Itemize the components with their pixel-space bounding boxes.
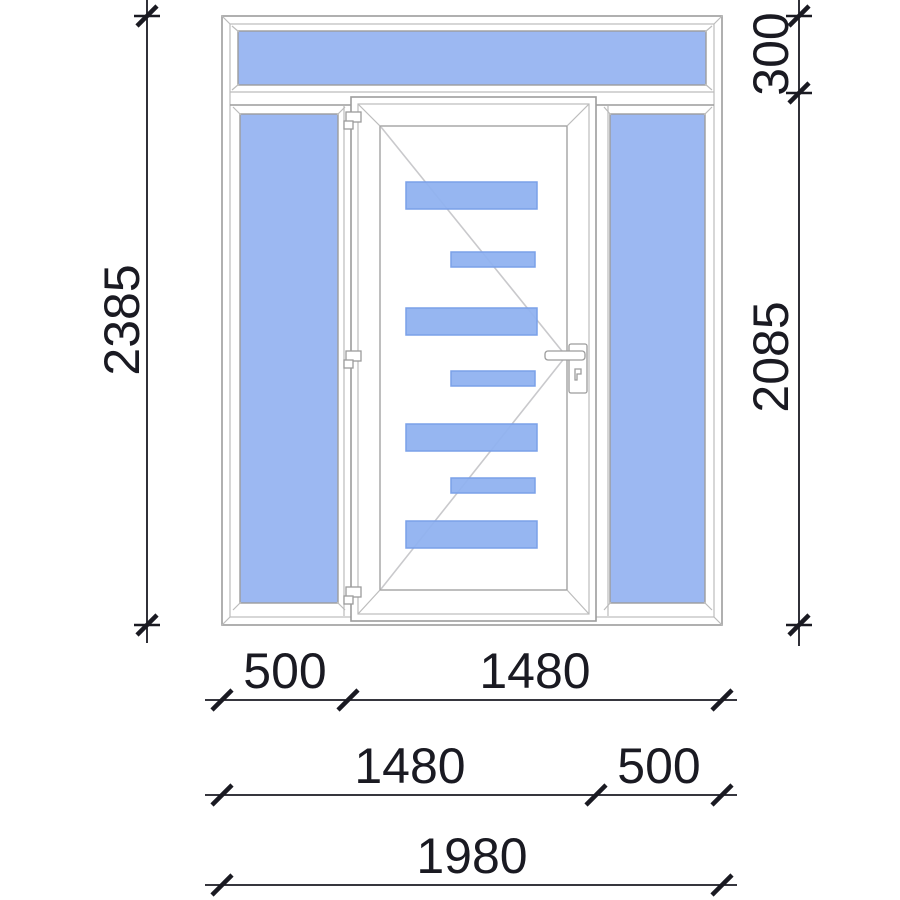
door-glass-strip — [406, 424, 537, 451]
right-sidelight-glass — [610, 114, 705, 603]
dimension-label-total-width: 1980 — [416, 828, 527, 884]
dimension-label-row2-right: 500 — [617, 738, 700, 794]
door-glass-strip — [451, 252, 535, 267]
dimension-label-transom-height: 300 — [743, 12, 799, 95]
dimension-total-width: 1980 — [205, 828, 737, 895]
door-glass-strip — [451, 371, 535, 386]
hinge-knuckle — [344, 596, 353, 604]
right-sidelight — [604, 106, 712, 616]
door-elevation-drawing: 2385 300 2085 500 1480 1480 500 1980 — [0, 0, 900, 900]
dimension-label-row1-right: 1480 — [479, 643, 590, 699]
dimension-width-row1: 500 1480 — [205, 643, 737, 710]
dimension-width-row2: 1480 500 — [205, 738, 737, 805]
left-sidelight — [233, 106, 345, 616]
dimension-label-total-height: 2385 — [94, 264, 150, 375]
hinge-knuckle — [344, 121, 353, 129]
dimension-label-row2-left: 1480 — [354, 738, 465, 794]
door-glass-strip — [406, 182, 537, 209]
door-glass-strip — [406, 521, 537, 548]
dimension-label-row1-left: 500 — [243, 643, 326, 699]
hinge-knuckle — [344, 360, 353, 368]
dimension-right-heights: 300 2085 — [743, 0, 812, 646]
door-leaf — [344, 97, 596, 621]
door-glass-strip — [406, 308, 537, 335]
handle-lever — [545, 351, 585, 360]
drawing-canvas: 2385 300 2085 500 1480 1480 500 1980 — [0, 0, 900, 900]
transom-glass — [238, 31, 706, 85]
left-sidelight-glass — [240, 114, 338, 603]
dimension-total-height: 2385 — [94, 0, 160, 643]
dimension-label-main-height: 2085 — [743, 301, 799, 412]
door-glass-strip — [451, 478, 535, 493]
